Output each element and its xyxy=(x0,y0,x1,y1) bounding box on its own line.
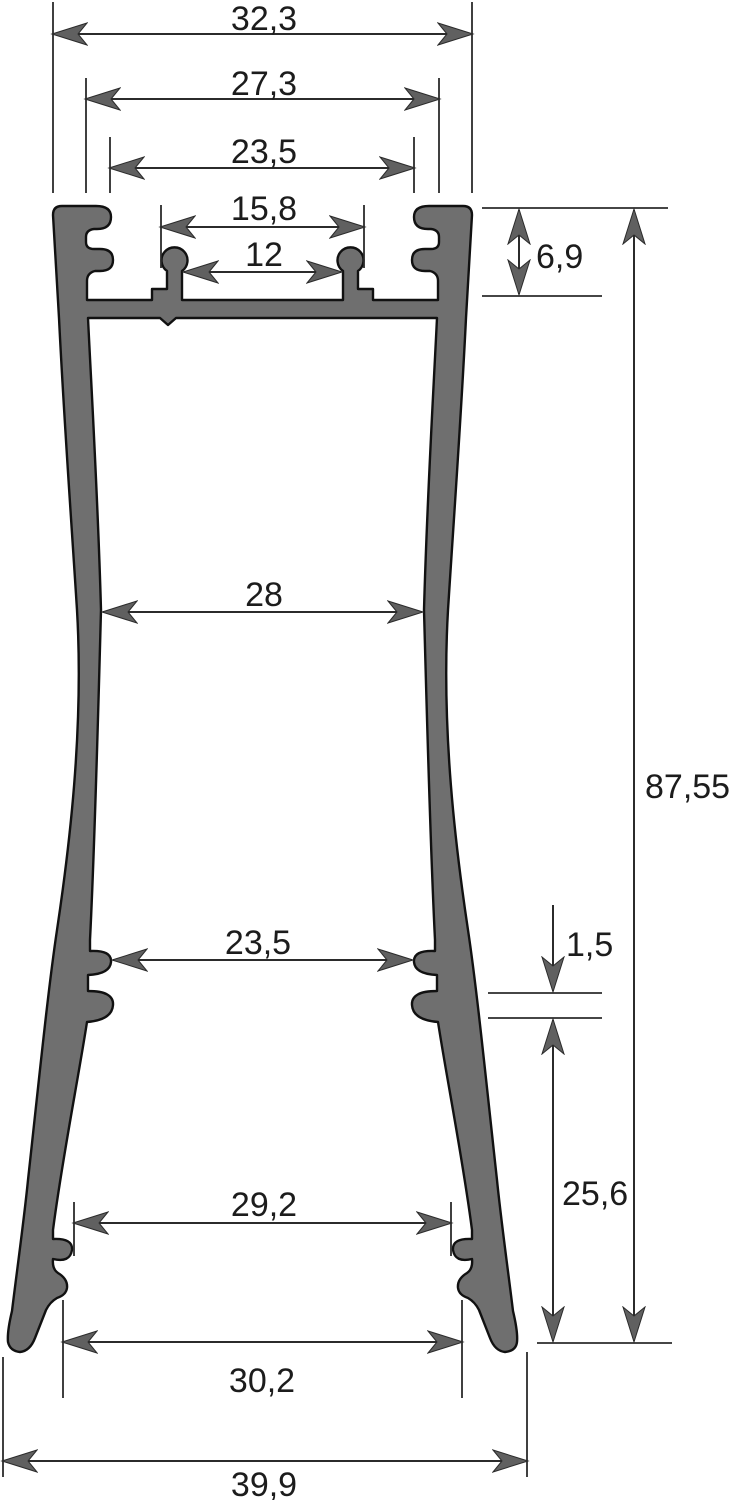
dim-label-top-opening-width: 23,5 xyxy=(231,133,297,171)
dim-label-led-slot-inner-width: 12 xyxy=(245,236,283,274)
dim-lower-section-height: 25,6 xyxy=(553,1020,628,1341)
dim-lower-inner-width: 23,5 xyxy=(113,924,412,962)
dim-label-foot-inner-width: 29,2 xyxy=(231,1186,297,1224)
dim-foot-inner-width: 29,2 xyxy=(74,1186,451,1256)
dim-label-led-slot-outer-width: 15,8 xyxy=(231,190,297,228)
dim-label-overall-base-width: 39,9 xyxy=(231,1466,297,1500)
dim-label-overall-height: 87,55 xyxy=(645,768,730,806)
dim-waist-inner-width: 28 xyxy=(103,576,422,614)
dim-flange-groove-width: 27,3 xyxy=(86,65,439,193)
dim-label-top-section-height: 6,9 xyxy=(536,238,583,276)
dim-rib-thickness: 1,5 xyxy=(488,905,613,1018)
dim-top-section-height: 6,9 xyxy=(482,208,668,296)
dim-label-lower-section-height: 25,6 xyxy=(562,1175,628,1213)
extrusion-profile-shape xyxy=(8,206,517,1352)
dim-label-foot-notch-width: 30,2 xyxy=(229,1362,295,1400)
dim-label-top-outer-width: 32,3 xyxy=(231,0,297,38)
profile-drawing-canvas: 32,3 27,3 23,5 15,8 12 6,9 28 xyxy=(0,0,735,1500)
dim-label-lower-inner-width: 23,5 xyxy=(225,924,291,962)
dim-label-rib-thickness: 1,5 xyxy=(566,926,613,964)
dim-foot-notch-width: 30,2 xyxy=(63,1300,462,1400)
dim-label-flange-groove-width: 27,3 xyxy=(231,65,297,103)
dim-top-opening-width: 23,5 xyxy=(110,133,414,193)
dim-overall-height: 87,55 xyxy=(537,210,730,1343)
dim-label-waist-inner-width: 28 xyxy=(245,576,283,614)
profile-drawing: 32,3 27,3 23,5 15,8 12 6,9 28 xyxy=(0,0,735,1500)
dim-led-slot-inner-width: 12 xyxy=(184,236,341,274)
